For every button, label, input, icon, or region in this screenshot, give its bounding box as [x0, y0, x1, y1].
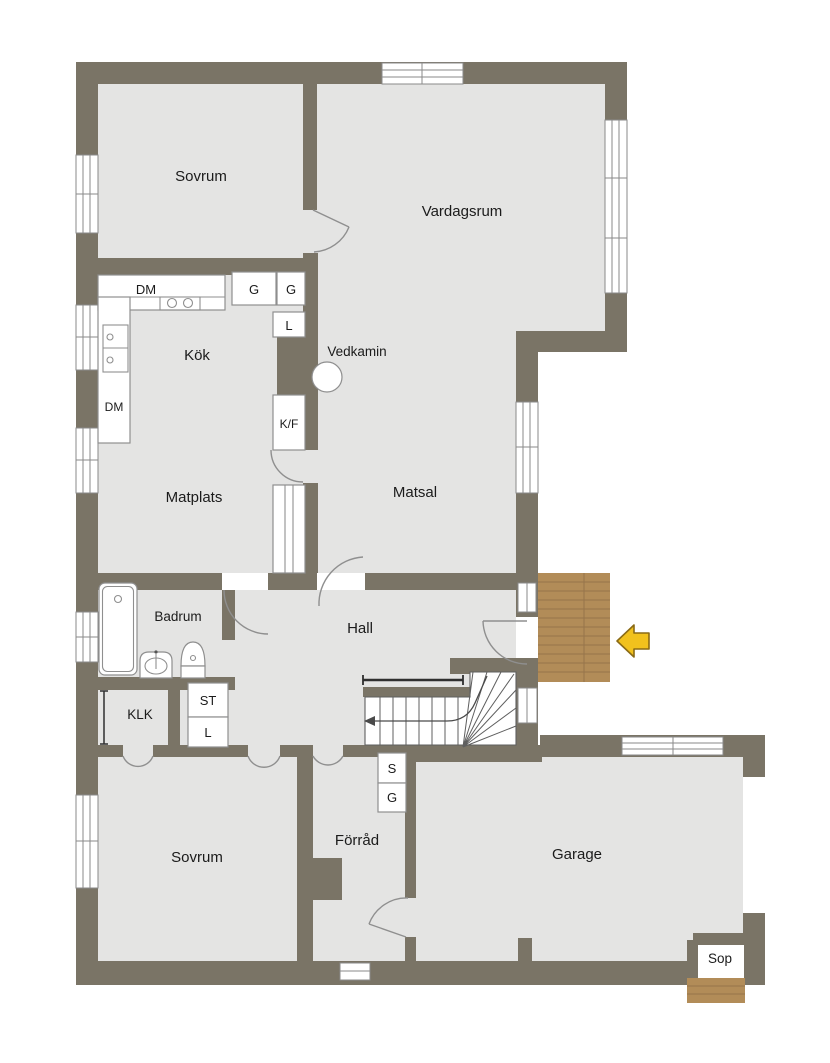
sop-steps: [687, 978, 745, 1003]
window: [76, 428, 98, 493]
wall-segment: [280, 745, 313, 757]
label-vedkamin: Vedkamin: [327, 344, 386, 359]
wall-segment: [98, 745, 123, 757]
window: [76, 305, 98, 370]
kitchen-counter-left: [98, 297, 130, 443]
bathroom-sink: [140, 650, 172, 678]
label-g1: G: [249, 282, 259, 297]
label-sop: Sop: [708, 951, 732, 966]
label-dm-left: DM: [105, 400, 124, 414]
garage-door-opening: [743, 777, 765, 913]
window: [76, 612, 98, 662]
bathtub: [99, 583, 137, 675]
floor-plan: Sovrum Vardagsrum Kök Vedkamin Matplats …: [0, 0, 830, 1063]
wall-segment: [268, 573, 317, 590]
label-badrum: Badrum: [154, 609, 201, 624]
label-g2: G: [286, 282, 296, 297]
wall-segment: [277, 337, 305, 395]
label-s: S: [388, 761, 397, 776]
window: [382, 63, 463, 84]
label-kok: Kök: [184, 347, 210, 364]
label-klk: KLK: [127, 707, 153, 722]
label-l-hall: L: [204, 725, 211, 740]
window: [76, 795, 98, 888]
tall-cabinet: [273, 485, 305, 573]
entrance-door-opening: [516, 617, 538, 658]
wall-segment: [168, 690, 180, 747]
wall-segment: [365, 573, 516, 590]
label-l-kitchen: L: [285, 318, 292, 333]
window: [516, 402, 538, 493]
wall-segment: [405, 745, 416, 898]
label-matsal: Matsal: [393, 484, 437, 501]
floor-plan-drawing: Sovrum Vardagsrum Kök Vedkamin Matplats …: [0, 0, 830, 1063]
label-forrad: Förråd: [335, 832, 379, 849]
wall-segment: [408, 745, 542, 762]
label-garage: Garage: [552, 846, 602, 863]
window: [76, 155, 98, 233]
label-dm-counter: DM: [136, 282, 156, 297]
window: [605, 120, 627, 293]
label-kf: K/F: [280, 417, 299, 431]
wood-stove-icon: [312, 362, 342, 392]
window: [340, 963, 370, 980]
window: [622, 737, 723, 755]
wall-segment: [516, 331, 627, 352]
window: [518, 583, 536, 612]
wall-segment: [76, 62, 627, 84]
wall-segment: [303, 84, 317, 210]
label-matplats: Matplats: [166, 489, 223, 506]
entrance-deck: [538, 573, 610, 682]
wall-segment: [405, 937, 416, 963]
wall-stub: [518, 938, 532, 963]
label-g3: G: [387, 790, 397, 805]
window: [518, 688, 537, 723]
label-hall: Hall: [347, 620, 373, 637]
wall-segment: [363, 687, 470, 697]
label-sovrum-bottom: Sovrum: [171, 849, 223, 866]
wall-segment: [693, 933, 745, 945]
label-st: ST: [200, 693, 217, 708]
label-vardagsrum: Vardagsrum: [422, 203, 503, 220]
wall-segment: [76, 961, 765, 985]
wall-segment: [687, 940, 698, 978]
wall-segment: [297, 745, 313, 961]
chimney-block: [302, 858, 342, 900]
toilet: [181, 642, 205, 678]
label-sovrum-top: Sovrum: [175, 168, 227, 185]
